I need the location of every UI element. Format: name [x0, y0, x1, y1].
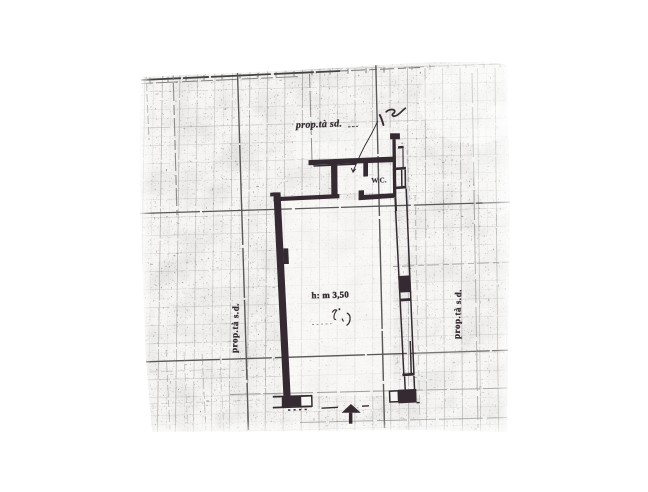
svg-text:prop.tà s.d.: prop.tà s.d. — [229, 303, 241, 353]
svg-text:W.C.: W.C. — [371, 176, 387, 185]
svg-text:h: m 3,50: h: m 3,50 — [311, 289, 349, 300]
svg-text:prop.tà s.d.: prop.tà s.d. — [452, 289, 464, 339]
svg-text:prop.tà sd.: prop.tà sd. — [295, 118, 343, 131]
